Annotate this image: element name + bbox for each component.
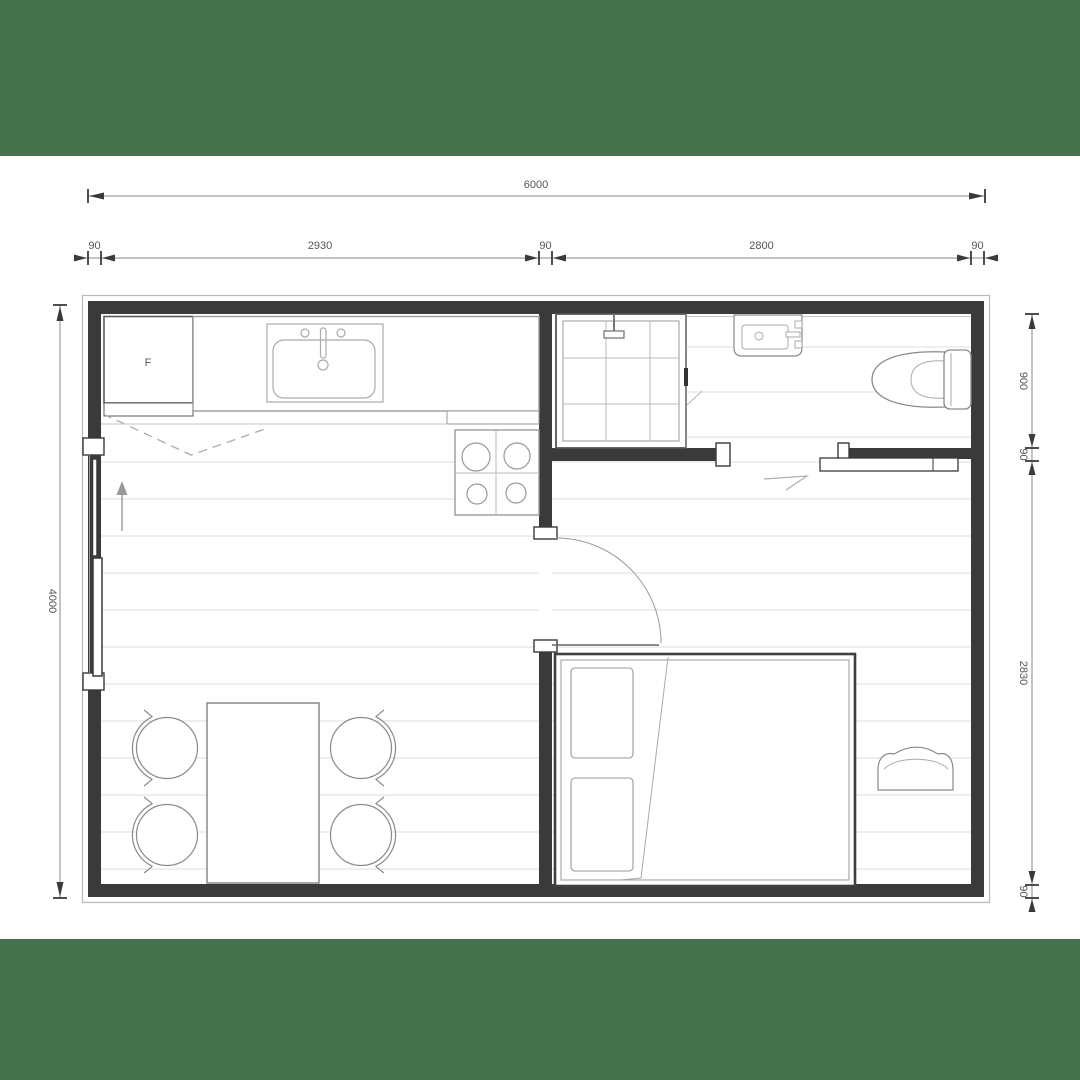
toilet-tank xyxy=(944,350,971,409)
dim-total-height: 4000 xyxy=(46,589,58,613)
dim-mid-wall: 90 xyxy=(539,240,551,252)
dim-bedroom-width: 2800 xyxy=(749,240,773,252)
dimension-top-total: 6000 xyxy=(88,179,985,203)
fridge-cabinet xyxy=(104,403,193,416)
wall-living-bedroom xyxy=(539,641,552,884)
dining-table xyxy=(207,703,319,883)
dimension-left-total: 4000 xyxy=(46,305,67,898)
shower xyxy=(556,314,686,448)
sink-tap-a xyxy=(795,321,802,328)
shower-head xyxy=(604,331,624,338)
floor-plan-page: F xyxy=(0,0,1080,1080)
dim-right-wall: 90 xyxy=(971,240,983,252)
stove xyxy=(455,430,539,515)
dim-bathroom-depth: 900 xyxy=(1017,372,1029,390)
wall-bathroom-south-left xyxy=(552,448,722,461)
jamb-bedroom-door-top xyxy=(534,527,557,539)
jamb-entry-door-top xyxy=(83,438,104,455)
sliding-door-leaf xyxy=(820,458,958,471)
pillow-top xyxy=(571,668,633,758)
dim-left-wall: 90 xyxy=(88,240,100,252)
floor-plan-drawing: F xyxy=(0,0,1080,1080)
dim-bedroom-depth: 2830 xyxy=(1017,661,1029,685)
jamb-bedroom-door-bottom xyxy=(534,640,557,652)
entry-door-sliding-panel xyxy=(93,558,102,676)
fridge-label: F xyxy=(145,357,152,369)
pillow-bottom xyxy=(571,778,633,871)
dim-kitchen-living-width: 2930 xyxy=(308,240,332,252)
sink-faucet-arm xyxy=(786,332,800,337)
jamb-bathroom-door-left xyxy=(716,443,730,466)
bathroom-sink xyxy=(734,315,802,356)
entry-door-fixed-panel xyxy=(93,459,98,556)
bathroom-sliding-door xyxy=(820,458,958,471)
kitchen-sink xyxy=(267,324,383,402)
dimension-top-segments: 90 2930 90 2800 90 xyxy=(74,240,998,265)
kitchen-counter-step xyxy=(447,411,539,424)
sink-tap-b xyxy=(795,341,802,348)
bedside-bench xyxy=(878,747,953,790)
bed xyxy=(555,654,855,886)
dim-total-width: 6000 xyxy=(524,179,548,191)
dimension-right-segments: 900 90 2830 90 xyxy=(1017,314,1039,912)
dim-bottom-wall: 90 xyxy=(1017,885,1029,897)
wall-kitchen-bathroom xyxy=(539,314,552,531)
dim-bathroom-wall: 90 xyxy=(1017,448,1029,460)
